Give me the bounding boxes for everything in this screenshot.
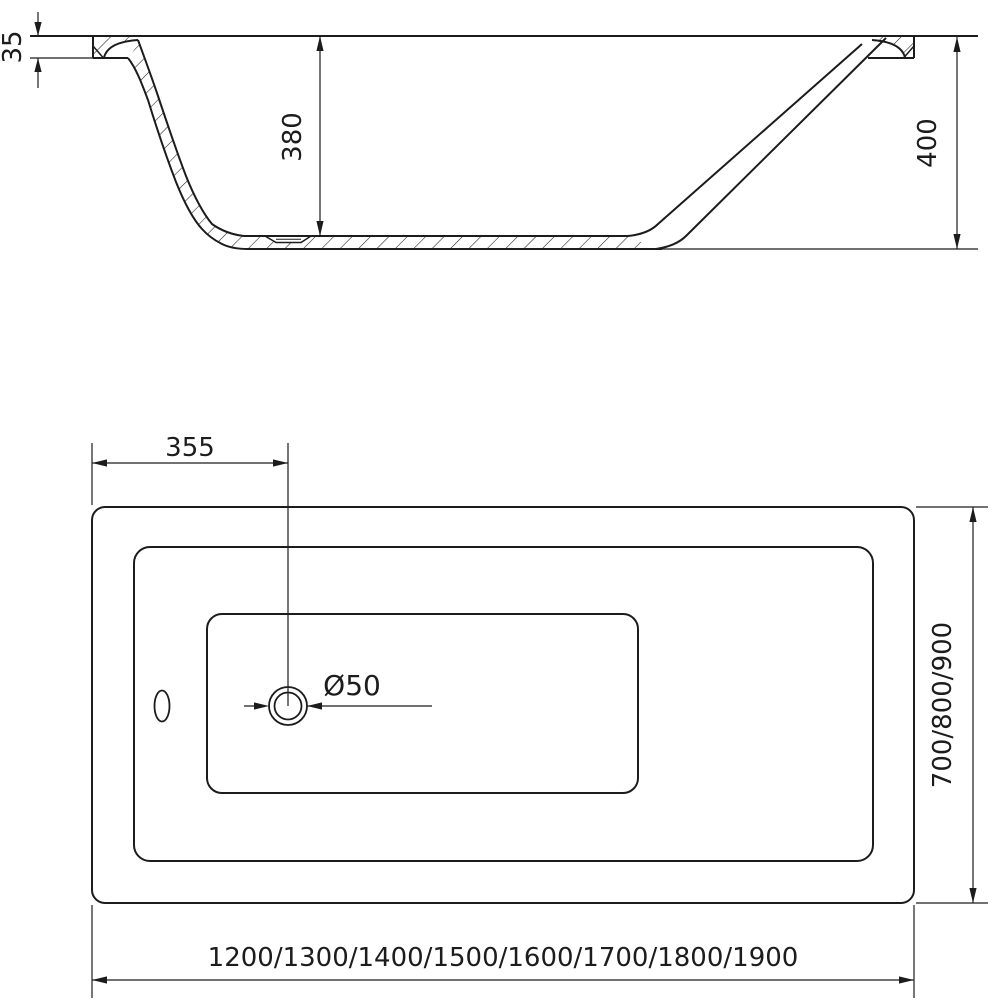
dim-rim-thickness: 35 bbox=[0, 12, 42, 88]
dim-label-drain-offset: 355 bbox=[165, 433, 215, 463]
dim-label-width-variants: 700/800/900 bbox=[928, 622, 958, 788]
arrow-right-icon bbox=[899, 976, 914, 983]
tub-floor-edge bbox=[207, 614, 638, 793]
dim-overall-height: 400 bbox=[913, 37, 961, 249]
arrow-down-icon bbox=[34, 22, 41, 36]
dim-label-overall-height: 400 bbox=[913, 118, 943, 168]
arrow-down-icon bbox=[316, 221, 323, 236]
arrow-left-icon bbox=[92, 459, 107, 466]
arrow-right-icon bbox=[254, 702, 269, 709]
dim-label-inner-depth: 380 bbox=[278, 112, 308, 162]
arrow-up-icon bbox=[316, 36, 323, 51]
tub-outer-edge bbox=[92, 507, 914, 903]
arrow-up-icon bbox=[34, 58, 41, 72]
dim-drain-diameter: Ø50 bbox=[244, 669, 432, 710]
technical-drawing-page: 35 380 400 355 bbox=[0, 0, 1000, 1000]
side-section-view: 35 380 400 bbox=[0, 12, 978, 249]
dim-label-length-variants: 1200/1300/1400/1500/1600/1700/1800/1900 bbox=[208, 943, 799, 973]
outer-slope-line bbox=[656, 38, 886, 249]
overflow-hole bbox=[155, 691, 170, 722]
arrow-up-icon bbox=[953, 37, 960, 52]
dim-label-drain-diameter: Ø50 bbox=[323, 669, 381, 702]
arrow-down-icon bbox=[953, 234, 960, 249]
arrow-right-icon bbox=[273, 459, 288, 466]
arrow-left-icon bbox=[307, 702, 322, 709]
dim-drain-offset: 355 bbox=[92, 433, 288, 505]
arrow-down-icon bbox=[969, 888, 976, 903]
tub-rim-inner-edge bbox=[134, 547, 873, 861]
bathtub-technical-drawing: 35 380 400 355 bbox=[0, 0, 1000, 1000]
inner-wall-floor-and-slope bbox=[138, 40, 862, 236]
dim-label-rim-thickness: 35 bbox=[0, 30, 28, 63]
plan-view: 355 Ø50 700/800/900 1200/1300/1400/1 bbox=[92, 433, 988, 998]
arrow-left-icon bbox=[92, 976, 107, 983]
dim-width-variants: 700/800/900 bbox=[916, 507, 988, 903]
dim-length-variants: 1200/1300/1400/1500/1600/1700/1800/1900 bbox=[92, 905, 914, 998]
arrow-up-icon bbox=[969, 507, 976, 522]
dim-inner-depth: 380 bbox=[278, 36, 324, 236]
